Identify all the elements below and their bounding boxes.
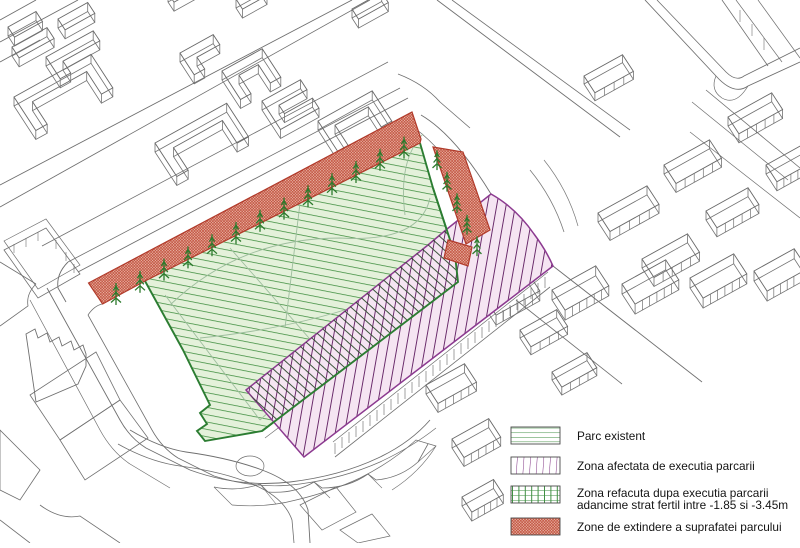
- svg-text:adancime strat fertil intre -1: adancime strat fertil intre -1.85 si -3.…: [577, 498, 788, 512]
- svg-text:Zona afectata de executia parc: Zona afectata de executia parcarii: [577, 459, 755, 473]
- svg-text:Zone de extindere a suprafatei: Zone de extindere a suprafatei parcului: [577, 520, 782, 534]
- svg-text:Parc existent: Parc existent: [577, 429, 646, 443]
